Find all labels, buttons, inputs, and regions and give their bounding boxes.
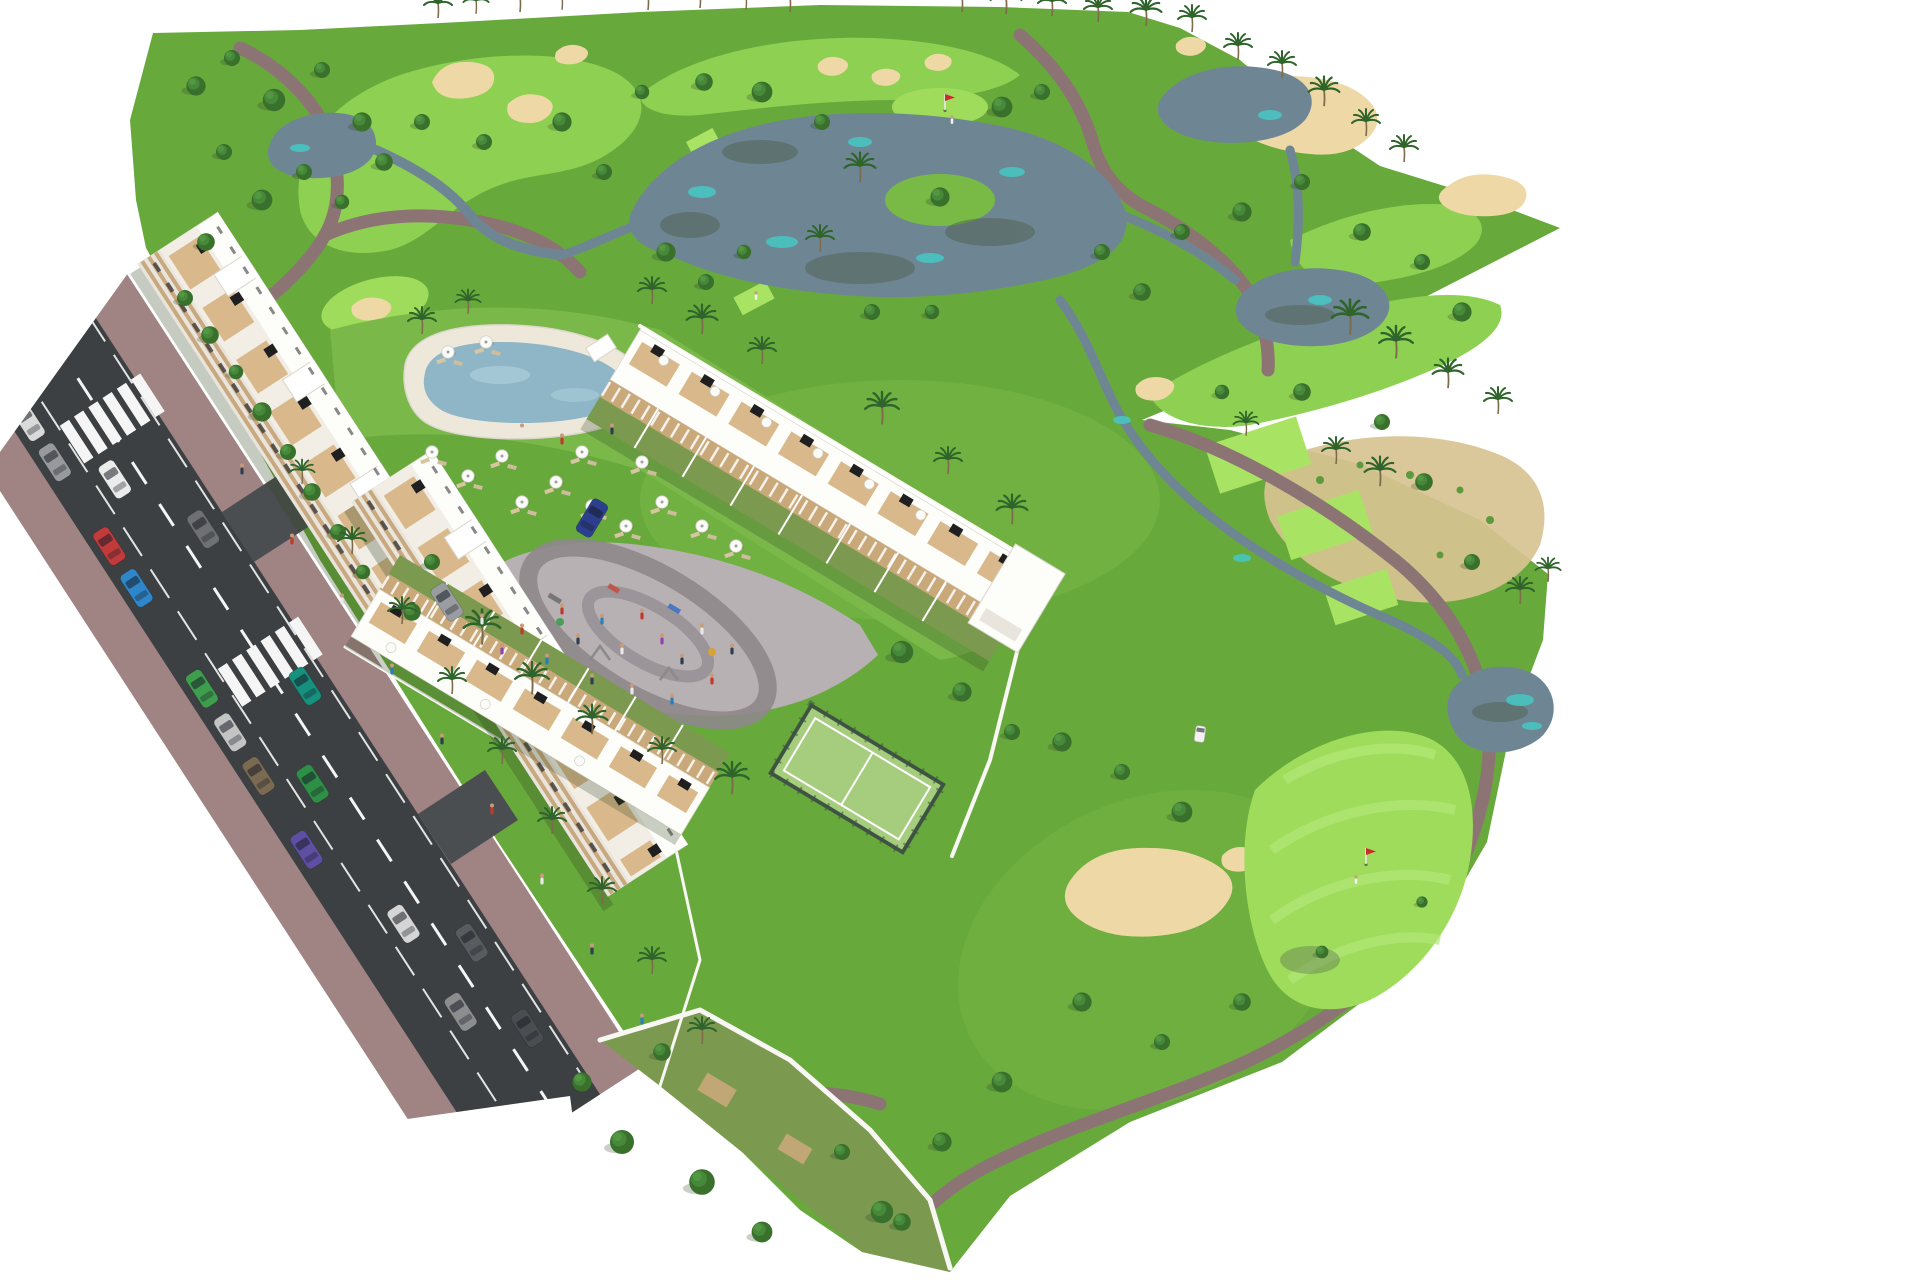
person xyxy=(710,674,714,685)
golfer xyxy=(1354,875,1357,884)
person xyxy=(640,1014,644,1025)
person xyxy=(700,624,704,635)
person xyxy=(640,609,644,620)
person xyxy=(480,614,484,625)
person xyxy=(576,634,580,645)
person xyxy=(610,424,614,435)
golfer xyxy=(754,291,757,300)
person xyxy=(500,644,504,655)
person xyxy=(440,734,444,745)
golf-cart xyxy=(1194,725,1206,742)
person xyxy=(340,594,344,605)
person xyxy=(680,654,684,665)
pool-highlight xyxy=(470,366,530,384)
pool-highlight xyxy=(551,388,599,402)
person xyxy=(560,434,564,445)
person xyxy=(660,634,664,645)
person xyxy=(390,664,394,675)
person xyxy=(600,614,604,625)
person xyxy=(590,944,594,955)
person xyxy=(730,644,734,655)
person xyxy=(520,424,524,435)
person xyxy=(670,694,674,705)
person xyxy=(590,674,594,685)
person xyxy=(540,874,544,885)
person xyxy=(620,644,624,655)
person xyxy=(290,534,294,545)
person xyxy=(490,804,494,815)
aerial-render: Aerial 3D architectural rendering - golf… xyxy=(0,0,1920,1280)
person xyxy=(560,604,564,615)
person xyxy=(630,684,634,695)
person xyxy=(545,654,549,665)
person xyxy=(520,624,524,635)
green-shadow xyxy=(1280,946,1340,974)
person xyxy=(240,464,244,475)
render-canvas: Aerial 3D architectural rendering - golf… xyxy=(0,0,1920,1280)
golfer xyxy=(950,115,953,124)
